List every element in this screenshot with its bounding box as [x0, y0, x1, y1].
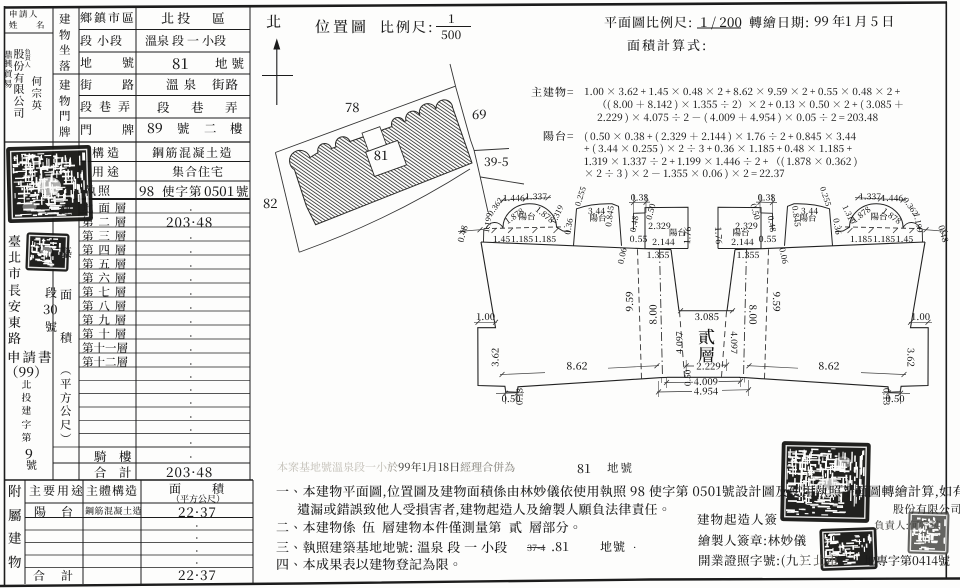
svg-text:1.185: 1.185 — [511, 233, 533, 245]
svg-text:1.45: 1.45 — [896, 233, 913, 245]
svg-text:9.59: 9.59 — [770, 291, 785, 312]
svg-text:陽台: 陽台 — [870, 211, 887, 223]
svg-text:1.00: 1.00 — [476, 309, 495, 323]
svg-text:0.38: 0.38 — [758, 191, 776, 204]
svg-text:陽台: 陽台 — [732, 227, 749, 239]
svg-text:0.38: 0.38 — [631, 191, 649, 204]
svg-text:0.36: 0.36 — [830, 217, 844, 236]
svg-text:0.13: 0.13 — [881, 388, 893, 405]
svg-text:1.337: 1.337 — [859, 190, 881, 202]
svg-text:2.329: 2.329 — [648, 219, 671, 232]
svg-text:1.185: 1.185 — [534, 233, 556, 245]
svg-text:1.446: 1.446 — [503, 192, 525, 204]
svg-text:0.06: 0.06 — [615, 246, 629, 265]
svg-text:陽台: 陽台 — [669, 227, 686, 239]
svg-text:8.00: 8.00 — [747, 304, 762, 325]
svg-text:1.00: 1.00 — [911, 309, 930, 323]
svg-text:1.355: 1.355 — [737, 248, 760, 261]
svg-text:1.185: 1.185 — [850, 233, 872, 245]
svg-text:0.50: 0.50 — [683, 369, 694, 386]
svg-text:陽台: 陽台 — [799, 212, 816, 224]
svg-text:1.76: 1.76 — [712, 226, 726, 244]
svg-text:81: 81 — [374, 145, 389, 164]
svg-text:0.48: 0.48 — [455, 224, 471, 244]
svg-text:3.62: 3.62 — [488, 348, 502, 367]
svg-text:9.59: 9.59 — [621, 291, 636, 312]
svg-text:0.36: 0.36 — [562, 217, 576, 236]
svg-text:0.48: 0.48 — [935, 224, 951, 244]
svg-text:3.085: 3.085 — [695, 309, 719, 323]
svg-text:1.446: 1.446 — [881, 192, 903, 204]
svg-text:0.255: 0.255 — [817, 185, 834, 207]
svg-text:0.48: 0.48 — [628, 214, 642, 233]
svg-text:0.13: 0.13 — [514, 388, 526, 405]
svg-text:4.097: 4.097 — [673, 331, 686, 354]
svg-text:1.45: 1.45 — [493, 233, 510, 245]
svg-text:0.55: 0.55 — [630, 232, 648, 245]
svg-text:0.48: 0.48 — [765, 215, 779, 234]
svg-text:層: 層 — [698, 341, 715, 366]
svg-text:陽台: 陽台 — [518, 211, 535, 223]
svg-text:1.337: 1.337 — [525, 190, 547, 202]
svg-text:1.355: 1.355 — [647, 248, 670, 261]
svg-text:0.55: 0.55 — [759, 232, 777, 245]
svg-text:陽台: 陽台 — [589, 212, 606, 224]
svg-text:0.06: 0.06 — [776, 247, 790, 266]
svg-text:0.255: 0.255 — [572, 185, 589, 207]
svg-text:1.199: 1.199 — [481, 212, 495, 234]
svg-text:4.954: 4.954 — [694, 383, 719, 397]
svg-text:8.00: 8.00 — [645, 304, 660, 325]
svg-text:1.199: 1.199 — [911, 212, 925, 234]
svg-text:8.62: 8.62 — [818, 359, 839, 374]
svg-text:1.185: 1.185 — [873, 233, 895, 245]
svg-text:4.097: 4.097 — [728, 331, 741, 354]
svg-text:3.62: 3.62 — [905, 348, 919, 367]
svg-text:8.62: 8.62 — [566, 359, 587, 374]
